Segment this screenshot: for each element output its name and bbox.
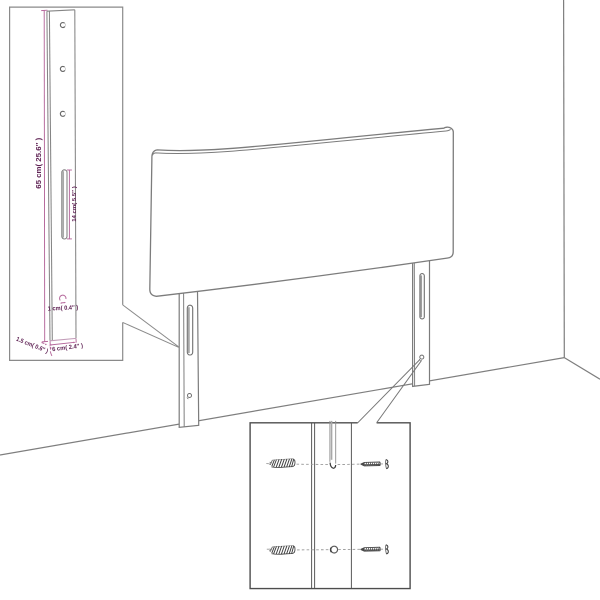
svg-text:65 cm( 25.6″ ): 65 cm( 25.6″ ) (34, 137, 43, 188)
svg-text:1 cm( 0.4″ ): 1 cm( 0.4″ ) (48, 304, 79, 312)
svg-text:14 cm( 5.5″ ): 14 cm( 5.5″ ) (72, 186, 78, 222)
